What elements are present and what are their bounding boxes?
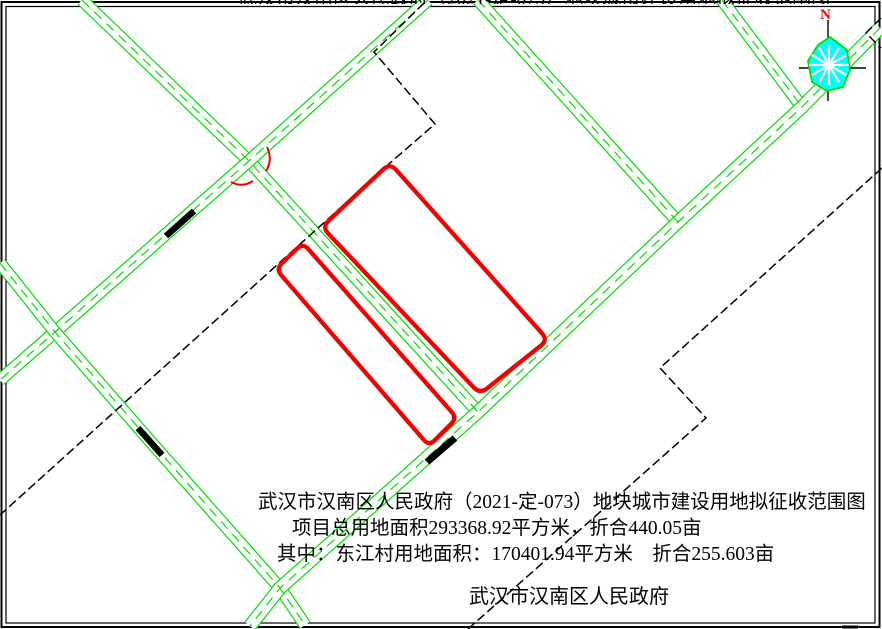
- total-area-line: 项目总用地面积293368.92平方米，折合440.05亩: [292, 519, 702, 539]
- north-label: N: [820, 7, 831, 23]
- map-title: 武汉市汉南区人民政府（2021-定-073）地块城市建设用地拟征收范围图: [258, 493, 866, 513]
- road-between-parcels-surface: [82, 0, 478, 412]
- land-acquisition-map-page: N 武汉市汉南区人民政府（2021-定-073）地块城市建设用地拟征收范围图 武…: [0, 0, 882, 629]
- road-top-branch-surface: [478, 0, 678, 222]
- dongjiang-area-line: 其中：东江村用地面积：170401.94平方米 折合255.603亩: [277, 545, 774, 565]
- top-clipped-text: 武汉市汉南区人民政府（2021-定-073）地块城市建设用地拟征收范围图: [238, 0, 830, 4]
- boundary-dashed-line: [0, 3, 435, 515]
- signature-line: 武汉市汉南区人民政府: [469, 587, 669, 608]
- bottom-edge-mark: [842, 626, 858, 629]
- top-clipped-text-content: 武汉市汉南区人民政府（2021-定-073）地块城市建设用地拟征收范围图: [238, 0, 830, 4]
